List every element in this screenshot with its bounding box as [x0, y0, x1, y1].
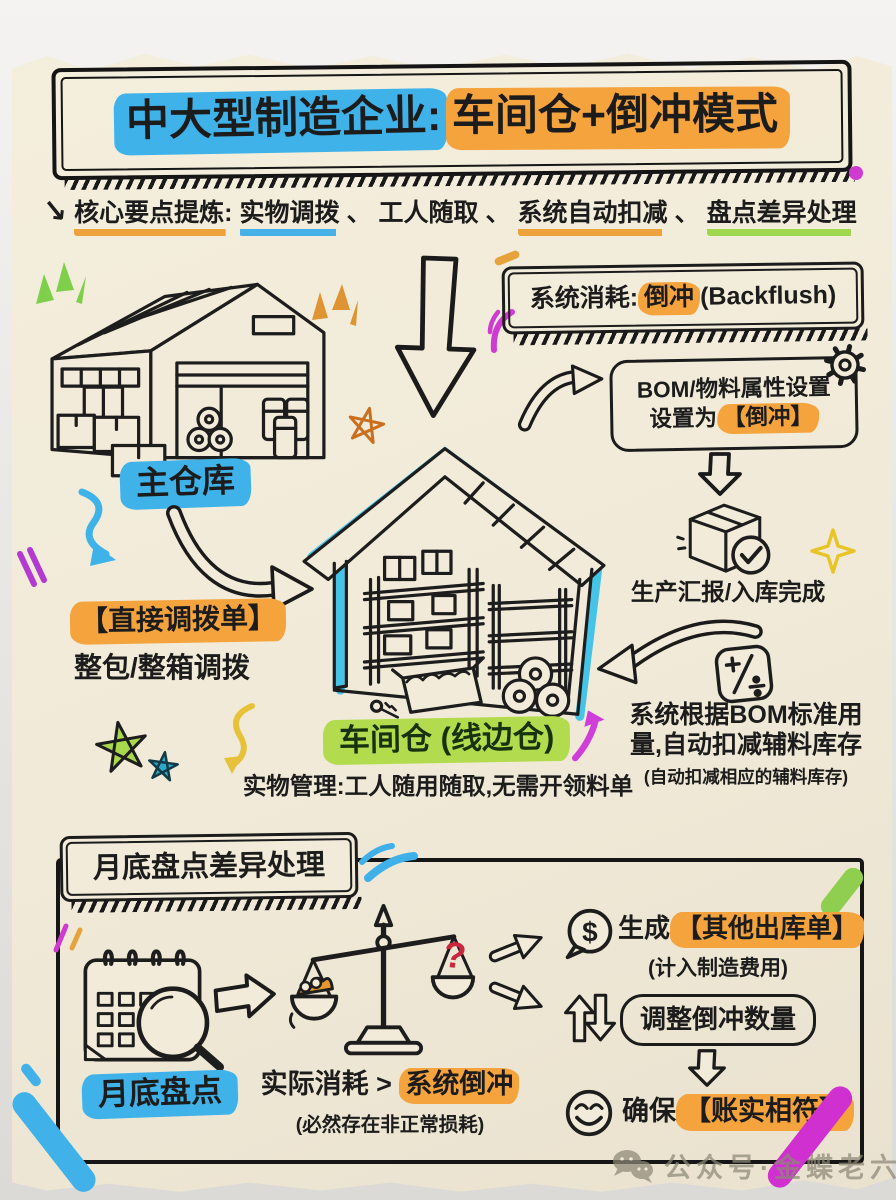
transfer-desc: 整包/整箱调拨: [74, 651, 250, 685]
yellow-star-icon: [812, 528, 856, 574]
down-arrow-bom: [698, 450, 742, 498]
package-check-icon: [676, 498, 774, 580]
workshop-shed-illustration: [286, 436, 618, 734]
deduct-note: (自动扣减相应的辅料库存): [622, 764, 870, 789]
dollar-glyph: $: [582, 916, 598, 947]
transfer-order-label: 【直接调拨单】: [70, 598, 287, 644]
magenta-up-arrow: [566, 708, 610, 766]
up-down-arrows-icon: [562, 992, 618, 1044]
subtitle-arrow-icon: ↘: [40, 193, 69, 231]
bottom-header: 月底盘点差异处理: [93, 848, 325, 886]
green-star-icon: [90, 716, 154, 777]
calendar-label: 月底盘点: [81, 1069, 238, 1120]
bom-line2-highlight: 【倒冲】: [717, 402, 820, 434]
subtitle-seg4: 盘点差异处理: [707, 198, 857, 236]
deduct-line2: 量,自动扣减辅料库存: [622, 730, 870, 760]
generate-line: 生成【其他出库单】: [618, 912, 864, 948]
yellow-squiggle-arrow: [218, 702, 266, 774]
blue-sparkle-arcs: [360, 836, 420, 882]
workshop-label: 车间仓 (线边仓): [323, 716, 571, 765]
arrow-to-bom: [515, 366, 607, 432]
generate-prefix: 生成: [618, 913, 670, 943]
compare-note: (必然存在非正常损耗): [252, 1108, 528, 1137]
ensure-prefix: 确保: [622, 1096, 676, 1126]
system-consume-prefix: 系统消耗:: [530, 283, 639, 313]
watermark-text: 公众号·金蝶老六: [664, 1146, 896, 1185]
watermark: 公众号·金蝶老六: [612, 1146, 896, 1185]
blue-squiggle-arrow: [66, 486, 122, 570]
bom-line2-prefix: 设置为: [649, 405, 717, 431]
dollar-bubble-icon: $: [562, 906, 616, 962]
infographic-page: 中大型制造企业: 车间仓+倒冲模式 ↘ 核心要点提炼: 实物调拨、 工人随取、 …: [0, 0, 896, 1200]
title-part-orange: 车间仓+倒冲模式: [445, 87, 789, 150]
subtitle-seg3: 系统自动扣减: [518, 198, 668, 236]
subtitle-sep: 、: [675, 198, 700, 228]
report-done-text: 生产汇报/入库完成: [612, 578, 844, 606]
teal-star-icon: [144, 748, 182, 784]
subtitle-lead: 核心要点提炼:: [74, 198, 232, 236]
subtitle-seg1: 实物调拨: [239, 198, 339, 236]
arrow-calendar-to-scale: [208, 966, 282, 1027]
smiley-icon: [564, 1088, 614, 1138]
system-consume-highlight: 倒冲: [638, 281, 700, 315]
deduct-text: 系统根据BOM标准用 量,自动扣减辅料库存 (自动扣减相应的辅料库存): [622, 700, 870, 789]
subtitle-seg2: 工人随取: [379, 198, 479, 228]
compare-line: 实际消耗 > 系统倒冲: [252, 1068, 528, 1104]
system-consume-suffix: (Backflush): [700, 280, 837, 310]
generate-highlight: 【其他出库单】: [670, 912, 864, 948]
down-arrow-adjust: [688, 1046, 726, 1090]
mini-spark: [46, 918, 86, 954]
subtitle: ↘ 核心要点提炼: 实物调拨、 工人随取、 系统自动扣减、 盘点差异处理: [42, 194, 862, 236]
system-consume-text: 系统消耗:倒冲(Backflush): [530, 279, 837, 316]
big-down-arrow: [387, 248, 485, 427]
workshop-desc: 实物管理:工人随用随取,无需开领料单: [226, 772, 650, 800]
calendar-magnifier-icon: [78, 936, 230, 1070]
deduct-line1: 系统根据BOM标准用: [622, 700, 870, 730]
subtitle-sep: 、: [486, 198, 511, 228]
compare-left: 实际消耗 >: [261, 1069, 392, 1099]
compare-highlight: 系统倒冲: [399, 1068, 519, 1104]
adjust-box: 调整倒冲数量: [620, 994, 816, 1046]
magenta-dot: [849, 166, 863, 180]
system-consume-box: 系统消耗:倒冲(Backflush): [502, 261, 865, 334]
adjust-label: 调整倒冲数量: [640, 1004, 796, 1035]
question-mark: ?: [441, 933, 469, 977]
calculator-icon: [711, 641, 777, 707]
bom-line2: 设置为【倒冲】: [649, 402, 819, 435]
title-part-blue: 中大型制造企业:: [114, 88, 448, 155]
wechat-icon: [612, 1148, 654, 1184]
bom-line1: BOM/物料属性设置: [637, 373, 831, 403]
subtitle-sep: 、: [346, 198, 371, 228]
title-box: 中大型制造企业: 车间仓+倒冲模式: [51, 60, 852, 180]
balance-scale-icon: ?: [290, 896, 478, 1070]
bottom-header-box: 月底盘点差异处理: [60, 832, 359, 902]
purple-slashes: [12, 548, 46, 588]
generate-note: (计入制造费用): [630, 952, 806, 982]
